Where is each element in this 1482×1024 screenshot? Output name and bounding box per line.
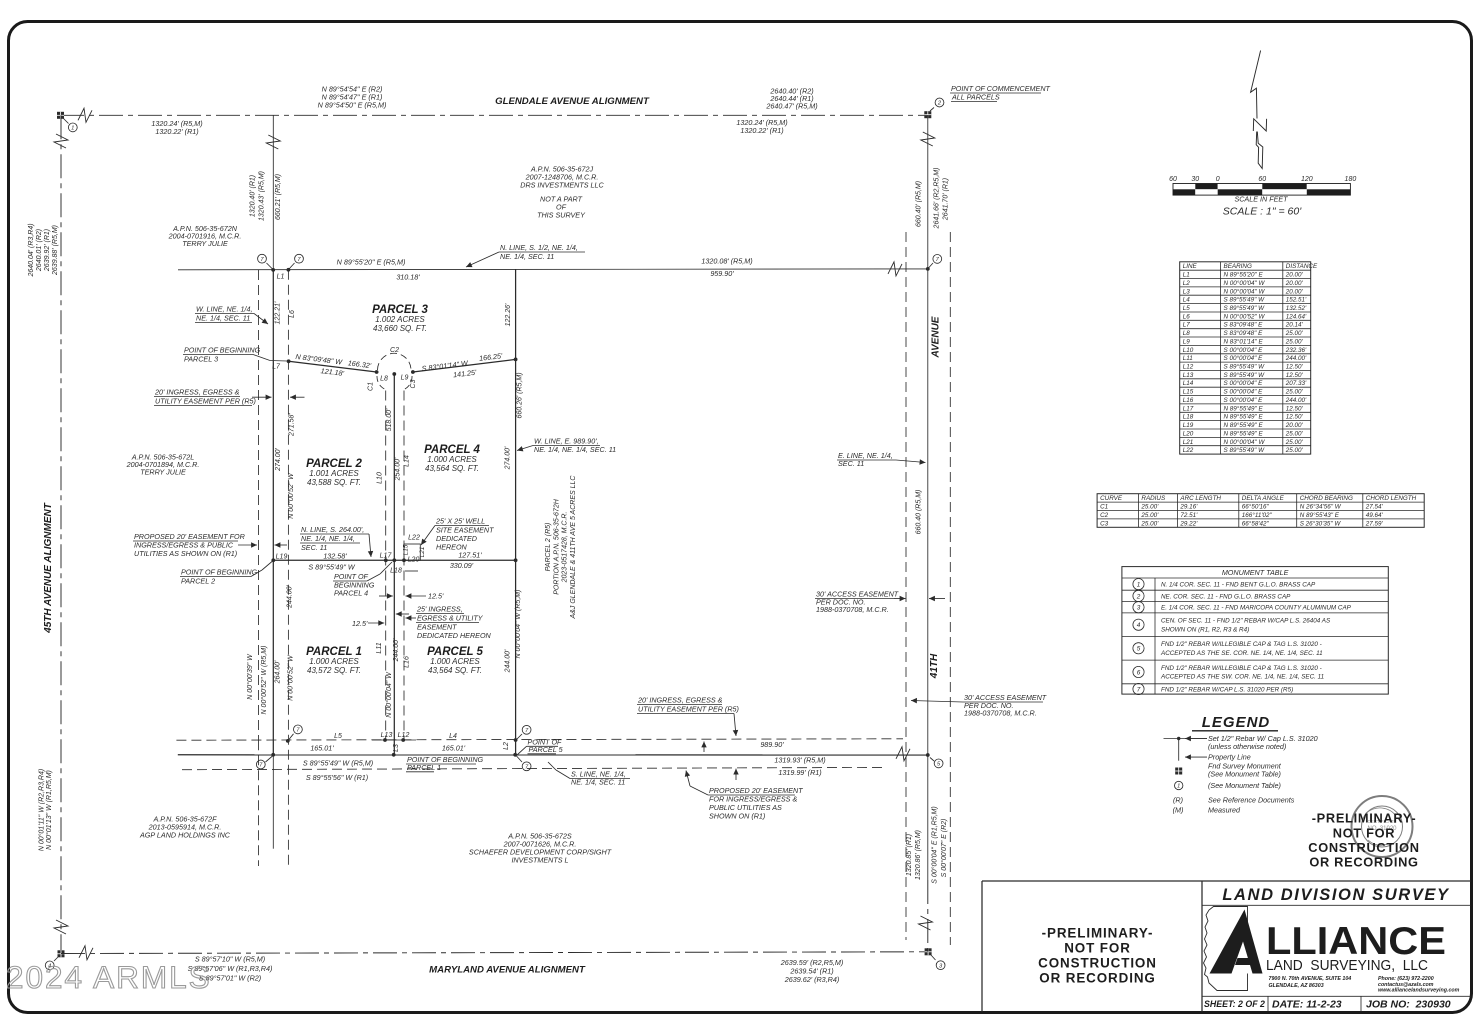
svg-text:NE. COR. SEC. 11 - FND G.L.O.: NE. COR. SEC. 11 - FND G.L.O. BRASS CAP bbox=[1161, 593, 1291, 600]
svg-text:1.002 ACRES: 1.002 ACRES bbox=[375, 315, 425, 324]
svg-text:C1: C1 bbox=[1100, 504, 1108, 511]
svg-text:N 00°00'39" W: N 00°00'39" W bbox=[246, 653, 254, 700]
svg-text:EGRESS & UTILITY: EGRESS & UTILITY bbox=[417, 614, 484, 623]
svg-text:N 89°55'20" E (R5,M): N 89°55'20" E (R5,M) bbox=[337, 258, 406, 267]
svg-text:660.26' (R5,M): 660.26' (R5,M) bbox=[517, 372, 524, 418]
svg-text:L20: L20 bbox=[1183, 430, 1194, 437]
svg-text:UTILITY EASEMENT PER (R5): UTILITY EASEMENT PER (R5) bbox=[155, 397, 256, 406]
svg-text:ARC LENGTH: ARC LENGTH bbox=[1179, 495, 1221, 502]
svg-text:L9: L9 bbox=[1183, 338, 1191, 345]
svg-text:S 89°55'49" W: S 89°55'49" W bbox=[1224, 304, 1266, 312]
svg-text:20.00': 20.00' bbox=[1285, 272, 1304, 279]
svg-text:25.00': 25.00' bbox=[1285, 389, 1304, 396]
svg-text:L6: L6 bbox=[289, 310, 296, 318]
svg-text:S 00°00'04" E: S 00°00'04" E bbox=[1224, 346, 1264, 354]
svg-text:MONUMENT TABLE: MONUMENT TABLE bbox=[1222, 568, 1289, 577]
svg-text:L18: L18 bbox=[390, 568, 402, 575]
svg-text:20.14': 20.14' bbox=[1285, 322, 1304, 329]
svg-text:43,564 SQ. FT.: 43,564 SQ. FT. bbox=[428, 666, 482, 675]
svg-text:3: 3 bbox=[1137, 605, 1141, 612]
svg-text:12.5': 12.5' bbox=[428, 592, 444, 601]
svg-text:(See Monument Table): (See Monument Table) bbox=[1208, 781, 1281, 790]
svg-text:1319.93' (R5,M): 1319.93' (R5,M) bbox=[774, 756, 825, 765]
svg-text:L2: L2 bbox=[1183, 280, 1191, 287]
svg-text:L5: L5 bbox=[1183, 305, 1191, 312]
svg-text:N 00°00'52" W: N 00°00'52" W bbox=[1224, 312, 1266, 320]
svg-text:L7: L7 bbox=[272, 364, 281, 371]
svg-text:E. 1/4 COR. SEC. 11 - FND MARI: E. 1/4 COR. SEC. 11 - FND MARICOPA COUNT… bbox=[1161, 605, 1352, 612]
svg-text:S 89°55'49" W (R5,M): S 89°55'49" W (R5,M) bbox=[303, 759, 373, 768]
svg-text:NOT FOR: NOT FOR bbox=[1064, 941, 1131, 956]
svg-text:264.00': 264.00' bbox=[274, 660, 281, 684]
svg-text:232.36': 232.36' bbox=[1285, 347, 1307, 354]
svg-text:AVENUE: AVENUE bbox=[931, 316, 942, 358]
svg-text:GLENDALE, AZ 86303: GLENDALE, AZ 86303 bbox=[1269, 983, 1324, 989]
svg-text:NE. 1/4, SEC. 11: NE. 1/4, SEC. 11 bbox=[571, 778, 625, 787]
svg-text:ACCEPTED AS THE SW. COR. NE. 1: ACCEPTED AS THE SW. COR. NE. 1/4, NE. 1/… bbox=[1160, 674, 1324, 681]
svg-text:L21: L21 bbox=[1183, 439, 1194, 446]
svg-text:-PRELIMINARY-: -PRELIMINARY- bbox=[1312, 811, 1417, 826]
svg-text:L12: L12 bbox=[1183, 364, 1194, 371]
svg-text:N 83°01'14" E: N 83°01'14" E bbox=[1224, 337, 1264, 345]
svg-text:29.16': 29.16' bbox=[1179, 504, 1198, 511]
svg-text:2639.62' (R3,R4): 2639.62' (R3,R4) bbox=[784, 975, 840, 984]
svg-text:274.00': 274.00' bbox=[505, 446, 512, 470]
svg-text:1320.43' (R5,M): 1320.43' (R5,M) bbox=[259, 171, 266, 221]
svg-text:(R): (R) bbox=[1173, 796, 1183, 805]
svg-text:60: 60 bbox=[1169, 176, 1177, 183]
svg-text:L14: L14 bbox=[1183, 380, 1194, 387]
svg-text:1: 1 bbox=[1137, 582, 1141, 589]
svg-text:L8: L8 bbox=[380, 376, 388, 383]
svg-text:2639.88' (R5,M): 2639.88' (R5,M) bbox=[52, 225, 59, 276]
svg-text:20' INGRESS, EGRESS &: 20' INGRESS, EGRESS & bbox=[154, 388, 240, 397]
svg-text:43,572 SQ. FT.: 43,572 SQ. FT. bbox=[307, 666, 361, 675]
svg-text:271.58': 271.58' bbox=[288, 413, 295, 437]
svg-text:DELTA ANGLE: DELTA ANGLE bbox=[1242, 495, 1285, 502]
svg-text:25.00': 25.00' bbox=[1140, 520, 1159, 527]
svg-text:PARCEL 5: PARCEL 5 bbox=[529, 745, 564, 754]
svg-text:124.64': 124.64' bbox=[1286, 313, 1307, 320]
svg-text:1319.99' (R1): 1319.99' (R1) bbox=[778, 768, 821, 777]
svg-text:PARCEL 1: PARCEL 1 bbox=[407, 763, 441, 772]
svg-text:152.51': 152.51' bbox=[1286, 297, 1307, 304]
svg-text:L5: L5 bbox=[334, 733, 342, 740]
svg-text:LEGEND: LEGEND bbox=[1202, 714, 1271, 731]
svg-text:Property Line: Property Line bbox=[1208, 753, 1251, 762]
svg-text:N 00°00'52" W: N 00°00'52" W bbox=[287, 472, 295, 519]
svg-text:7900 N. 70th AVENUE, SUITE 104: 7900 N. 70th AVENUE, SUITE 104 bbox=[1269, 976, 1352, 982]
svg-text:C3: C3 bbox=[410, 379, 417, 388]
svg-text:1320.40' (R1): 1320.40' (R1) bbox=[250, 175, 257, 217]
svg-text:N 89°55'43" E: N 89°55'43" E bbox=[1300, 511, 1340, 519]
svg-text:2641.70' (R1): 2641.70' (R1) bbox=[943, 178, 950, 221]
svg-text:25' INGRESS,: 25' INGRESS, bbox=[416, 605, 463, 614]
svg-text:244.00': 244.00' bbox=[1285, 355, 1307, 362]
svg-text:NE. 1/4, NE. 1/4,: NE. 1/4, NE. 1/4, bbox=[301, 534, 355, 543]
svg-text:RADIUS: RADIUS bbox=[1141, 495, 1166, 502]
svg-text:122.26': 122.26' bbox=[505, 303, 512, 326]
svg-text:1320.85' (R1): 1320.85' (R1) bbox=[906, 834, 913, 876]
svg-text:25.00': 25.00' bbox=[1285, 330, 1304, 337]
svg-text:2640.47' (R5,M): 2640.47' (R5,M) bbox=[765, 102, 817, 111]
svg-text:4: 4 bbox=[1137, 622, 1141, 629]
svg-text:DRS INVESTMENTS LLC: DRS INVESTMENTS LLC bbox=[520, 181, 604, 190]
svg-text:N 00°00'04" W: N 00°00'04" W bbox=[1224, 279, 1266, 287]
svg-text:POINT OF BEGINNING: POINT OF BEGINNING bbox=[181, 568, 258, 577]
svg-text:60: 60 bbox=[1258, 176, 1266, 183]
svg-text:120: 120 bbox=[1301, 176, 1313, 183]
svg-text:THIS SURVEY: THIS SURVEY bbox=[537, 211, 586, 220]
svg-text:12.50': 12.50' bbox=[1286, 372, 1304, 379]
svg-text:660.21' (R5,M): 660.21' (R5,M) bbox=[275, 174, 282, 220]
svg-text:CURVE: CURVE bbox=[1100, 495, 1123, 502]
svg-text:25.00': 25.00' bbox=[1285, 338, 1304, 345]
svg-text:2023-0517428, M.C.R.: 2023-0517428, M.C.R. bbox=[562, 512, 569, 584]
svg-text:SEC. 11: SEC. 11 bbox=[838, 459, 864, 468]
svg-text:132.52': 132.52' bbox=[1286, 305, 1307, 312]
svg-text:NE. 1/4, SEC. 11: NE. 1/4, SEC. 11 bbox=[196, 314, 250, 323]
svg-text:L16: L16 bbox=[1183, 397, 1194, 404]
svg-text:43,588 SQ. FT.: 43,588 SQ. FT. bbox=[307, 478, 361, 487]
svg-text:L15: L15 bbox=[402, 544, 409, 555]
svg-text:N 89°55'49" E: N 89°55'49" E bbox=[1224, 421, 1264, 429]
svg-text:122.21': 122.21' bbox=[275, 301, 282, 324]
svg-text:ALL PARCELS: ALL PARCELS bbox=[951, 93, 1000, 102]
svg-text:L19: L19 bbox=[276, 554, 288, 561]
svg-text:L3: L3 bbox=[1183, 288, 1191, 295]
svg-text:S 89°55'49" W: S 89°55'49" W bbox=[1224, 363, 1266, 371]
svg-text:NE. 1/4, SEC. 11: NE. 1/4, SEC. 11 bbox=[500, 252, 554, 261]
svg-text:CEN. OF SEC. 11 - FND 1/2" REB: CEN. OF SEC. 11 - FND 1/2" REBAR W/CAP L… bbox=[1161, 618, 1331, 625]
svg-text:L6: L6 bbox=[1183, 313, 1191, 320]
svg-text:49.64': 49.64' bbox=[1366, 512, 1384, 519]
svg-text:A&J GLENDALE & 411TH AVE 5 ACR: A&J GLENDALE & 411TH AVE 5 ACRES LLC bbox=[570, 475, 577, 620]
svg-text:L1: L1 bbox=[277, 273, 285, 280]
svg-text:20.00': 20.00' bbox=[1285, 288, 1304, 295]
svg-text:25.00': 25.00' bbox=[1285, 447, 1304, 454]
svg-text:2641.66' (R2,R5,M): 2641.66' (R2,R5,M) bbox=[934, 168, 941, 230]
svg-text:C2: C2 bbox=[390, 347, 399, 354]
svg-text:1988-0370708, M.C.R.: 1988-0370708, M.C.R. bbox=[964, 709, 1037, 718]
svg-text:C1: C1 bbox=[368, 382, 375, 391]
svg-text:29.22': 29.22' bbox=[1179, 520, 1198, 527]
svg-text:2024 ARMLS: 2024 ARMLS bbox=[6, 959, 212, 995]
svg-text:1.000 ACRES: 1.000 ACRES bbox=[427, 455, 477, 464]
svg-text:207.33': 207.33' bbox=[1285, 380, 1307, 387]
svg-text:MARYLAND AVENUE ALIGNMENT: MARYLAND AVENUE ALIGNMENT bbox=[429, 965, 586, 976]
svg-text:244.00': 244.00' bbox=[286, 584, 293, 608]
svg-text:S 00°00'04" E: S 00°00'04" E bbox=[1224, 396, 1264, 404]
svg-text:N 89°55'49" E: N 89°55'49" E bbox=[1224, 429, 1264, 437]
svg-text:TERRY JULIE: TERRY JULIE bbox=[182, 239, 228, 248]
svg-text:OR RECORDING: OR RECORDING bbox=[1309, 855, 1418, 870]
svg-text:N 00°00'04" W: N 00°00'04" W bbox=[385, 671, 393, 718]
svg-text:-PRELIMINARY-: -PRELIMINARY- bbox=[1042, 926, 1154, 941]
svg-text:PARCEL 2 (R5): PARCEL 2 (R5) bbox=[545, 523, 552, 572]
svg-text:DEDICATED HEREON: DEDICATED HEREON bbox=[417, 631, 492, 640]
svg-text:(unless otherwise noted): (unless otherwise noted) bbox=[1208, 742, 1286, 751]
svg-text:2640.04' (R3,R4): 2640.04' (R3,R4) bbox=[28, 223, 35, 277]
svg-text:12.50': 12.50' bbox=[1286, 414, 1304, 421]
svg-text:L11: L11 bbox=[376, 642, 383, 653]
svg-text:N 89°55'49" E: N 89°55'49" E bbox=[1224, 413, 1264, 421]
svg-text:DATE: 11-2-23: DATE: 11-2-23 bbox=[1272, 999, 1342, 1011]
svg-text:W. LINE, NE. 1/4,: W. LINE, NE. 1/4, bbox=[196, 305, 252, 314]
svg-text:S 89°55'49" W: S 89°55'49" W bbox=[1224, 446, 1266, 454]
svg-text:20.00': 20.00' bbox=[1285, 422, 1304, 429]
svg-text:7: 7 bbox=[1137, 686, 1141, 693]
svg-text:660.40' (R5,M): 660.40' (R5,M) bbox=[916, 181, 923, 227]
svg-text:L4: L4 bbox=[1183, 297, 1191, 304]
svg-text:S 26°30'35" W: S 26°30'35" W bbox=[1300, 519, 1342, 527]
svg-text:L2: L2 bbox=[503, 742, 510, 750]
svg-text:L13: L13 bbox=[381, 732, 393, 739]
svg-text:20.00': 20.00' bbox=[1285, 280, 1304, 287]
svg-text:LAND SURVEYING, LLC: LAND SURVEYING, LLC bbox=[1266, 957, 1428, 974]
svg-text:UTILITY EASEMENT PER (R5): UTILITY EASEMENT PER (R5) bbox=[638, 705, 739, 714]
svg-text:CHORD BEARING: CHORD BEARING bbox=[1300, 495, 1353, 502]
svg-text:244.00': 244.00' bbox=[504, 649, 511, 673]
svg-text:L18: L18 bbox=[1183, 414, 1194, 421]
svg-text:132.58': 132.58' bbox=[323, 552, 347, 561]
svg-text:41TH: 41TH bbox=[929, 653, 940, 679]
svg-text:0: 0 bbox=[1216, 176, 1220, 183]
svg-text:6: 6 bbox=[1137, 669, 1141, 676]
svg-text:N. LINE, S. 1/2, NE. 1/4,: N. LINE, S. 1/2, NE. 1/4, bbox=[500, 243, 578, 252]
svg-text:S 83°09'48" E: S 83°09'48" E bbox=[1224, 321, 1264, 329]
svg-text:66°50'16": 66°50'16" bbox=[1242, 503, 1270, 511]
svg-text:180: 180 bbox=[1345, 176, 1357, 183]
svg-text:166°11'02": 166°11'02" bbox=[1242, 511, 1273, 519]
svg-text:N 00°01'11" W (R2,R3,R4): N 00°01'11" W (R2,R3,R4) bbox=[38, 769, 46, 851]
svg-text:20' INGRESS, EGRESS &: 20' INGRESS, EGRESS & bbox=[637, 696, 723, 705]
svg-text:AGP LAND HOLDINGS INC: AGP LAND HOLDINGS INC bbox=[139, 831, 231, 840]
svg-text:2640.01' (R2): 2640.01' (R2) bbox=[36, 229, 43, 272]
svg-text:N 89°55'20" E: N 89°55'20" E bbox=[1224, 271, 1264, 279]
svg-text:1: 1 bbox=[71, 126, 74, 132]
svg-text:27.59': 27.59' bbox=[1365, 520, 1384, 527]
svg-text:BEARING: BEARING bbox=[1224, 263, 1252, 270]
svg-text:S 00°00'04" E: S 00°00'04" E bbox=[1224, 379, 1264, 387]
svg-text:CONSTRUCTION: CONSTRUCTION bbox=[1038, 956, 1157, 971]
svg-text:254.00': 254.00' bbox=[395, 457, 402, 481]
svg-text:UTILITIES AS SHOWN ON (R1): UTILITIES AS SHOWN ON (R1) bbox=[134, 549, 237, 558]
svg-text:2639.92' (R1): 2639.92' (R1) bbox=[44, 229, 51, 272]
svg-text:L11: L11 bbox=[1183, 355, 1193, 362]
svg-text:PARCEL 4: PARCEL 4 bbox=[334, 589, 368, 598]
svg-text:C3: C3 bbox=[1100, 520, 1109, 527]
svg-text:SHOWN ON (R1): SHOWN ON (R1) bbox=[709, 812, 765, 821]
svg-text:244.00': 244.00' bbox=[1285, 397, 1307, 404]
svg-text:L21: L21 bbox=[419, 546, 426, 557]
svg-text:(See Monument Table): (See Monument Table) bbox=[1208, 770, 1281, 779]
svg-text:N 00°00'04" W: N 00°00'04" W bbox=[1224, 287, 1266, 295]
svg-text:S 89°55'56" W (R1): S 89°55'56" W (R1) bbox=[306, 773, 368, 782]
svg-text:SHOWN ON (R1, R2, R3 & R4): SHOWN ON (R1, R2, R3 & R4) bbox=[1161, 626, 1249, 633]
svg-text:N 00°00'04" W: N 00°00'04" W bbox=[1224, 438, 1266, 446]
svg-text:LINE: LINE bbox=[1183, 263, 1198, 270]
svg-text:N 00°00'04" W (R5,M): N 00°00'04" W (R5,M) bbox=[514, 590, 522, 659]
svg-text:SHEET: 2 OF 2: SHEET: 2 OF 2 bbox=[1204, 999, 1265, 1009]
svg-text:C2: C2 bbox=[1100, 512, 1109, 519]
svg-text:DISTANCE: DISTANCE bbox=[1286, 263, 1318, 270]
svg-text:165.01': 165.01' bbox=[310, 744, 334, 753]
svg-text:244.00': 244.00' bbox=[393, 638, 400, 662]
svg-text:N 26°34'56" W: N 26°34'56" W bbox=[1300, 503, 1342, 511]
svg-text:See Reference Documents: See Reference Documents bbox=[1208, 796, 1295, 805]
svg-text:TERRY JULIE: TERRY JULIE bbox=[140, 468, 186, 477]
svg-text:L10: L10 bbox=[1183, 347, 1194, 354]
svg-text:27.54': 27.54' bbox=[1365, 504, 1384, 511]
svg-text:66°58'42": 66°58'42" bbox=[1242, 519, 1270, 527]
svg-text:S 00°00'04" E (R1,R5,M): S 00°00'04" E (R1,R5,M) bbox=[930, 806, 938, 883]
svg-text:L17: L17 bbox=[1183, 405, 1194, 412]
svg-text:FND 1/2" REBAR W/CAP L.S. 3102: FND 1/2" REBAR W/CAP L.S. 31020 PER (R5) bbox=[1161, 686, 1293, 693]
svg-text:1.000 ACRES: 1.000 ACRES bbox=[309, 657, 359, 666]
svg-text:1320.22' (R1): 1320.22' (R1) bbox=[155, 127, 198, 136]
svg-text:SEC. 11: SEC. 11 bbox=[301, 543, 327, 552]
svg-text:25.00': 25.00' bbox=[1140, 512, 1159, 519]
svg-text:43,564 SQ. FT.: 43,564 SQ. FT. bbox=[425, 464, 479, 473]
svg-text:518.00': 518.00' bbox=[386, 408, 393, 431]
svg-text:ACCEPTED AS THE SE. COR. NE. 1: ACCEPTED AS THE SE. COR. NE. 1/4, NE. 1/… bbox=[1160, 650, 1323, 657]
svg-text:PARCEL 3: PARCEL 3 bbox=[184, 355, 218, 364]
svg-text:N 00°00'52" W (R5,M): N 00°00'52" W (R5,M) bbox=[260, 646, 268, 715]
svg-text:SCALE IN FEET: SCALE IN FEET bbox=[1234, 195, 1288, 204]
svg-text:43,660 SQ. FT.: 43,660 SQ. FT. bbox=[373, 324, 427, 333]
svg-text:989.90': 989.90' bbox=[760, 740, 784, 749]
svg-text:JOB NO: 230930: JOB NO: 230930 bbox=[1366, 999, 1451, 1011]
svg-text:L22: L22 bbox=[408, 535, 420, 542]
svg-text:959.90': 959.90' bbox=[710, 269, 734, 278]
svg-text:S 00°00'04" E: S 00°00'04" E bbox=[1224, 354, 1264, 362]
svg-text:N. LINE, S. 264.00',: N. LINE, S. 264.00', bbox=[301, 525, 364, 534]
svg-text:12.5': 12.5' bbox=[352, 619, 368, 628]
svg-text:L13: L13 bbox=[1183, 372, 1194, 379]
svg-text:CONSTRUCTION: CONSTRUCTION bbox=[1308, 840, 1419, 855]
svg-text:274.00': 274.00' bbox=[275, 447, 282, 471]
svg-text:LAND DIVISION SURVEY: LAND DIVISION SURVEY bbox=[1222, 886, 1450, 904]
svg-text:72.51': 72.51' bbox=[1180, 512, 1198, 519]
svg-text:N 89°55'49" E: N 89°55'49" E bbox=[1224, 404, 1264, 412]
svg-text:45TH AVENUE ALIGNMENT: 45TH AVENUE ALIGNMENT bbox=[43, 502, 54, 634]
svg-text:www.alliancelandsurveying.com: www.alliancelandsurveying.com bbox=[1378, 988, 1460, 994]
svg-text:127.51': 127.51' bbox=[458, 551, 482, 560]
svg-text:N 89°54'50" E (R5,M): N 89°54'50" E (R5,M) bbox=[318, 101, 387, 110]
svg-text:FND 1/2" REBAR W/ILLEGIBLE CAP: FND 1/2" REBAR W/ILLEGIBLE CAP & TAG L.S… bbox=[1161, 665, 1322, 672]
svg-text:L10: L10 bbox=[376, 472, 383, 484]
svg-text:L14: L14 bbox=[403, 455, 410, 467]
svg-text:1320.86' (R5,M): 1320.86' (R5,M) bbox=[915, 830, 922, 880]
svg-text:L9: L9 bbox=[401, 375, 409, 382]
svg-text:5: 5 bbox=[1137, 646, 1141, 653]
svg-text:1.001 ACRES: 1.001 ACRES bbox=[309, 469, 359, 478]
svg-text:GLENDALE AVENUE ALIGNMENT: GLENDALE AVENUE ALIGNMENT bbox=[495, 96, 650, 107]
svg-text:1.000 ACRES: 1.000 ACRES bbox=[430, 657, 480, 666]
svg-text:165.01': 165.01' bbox=[442, 744, 466, 753]
svg-text:L12: L12 bbox=[398, 732, 410, 739]
svg-text:INVESTMENTS L: INVESTMENTS L bbox=[511, 856, 568, 865]
svg-text:HEREON: HEREON bbox=[436, 543, 468, 552]
svg-text:OR RECORDING: OR RECORDING bbox=[1039, 971, 1155, 986]
svg-text:12.50': 12.50' bbox=[1286, 405, 1304, 412]
svg-text:25' X 25' WELL: 25' X 25' WELL bbox=[435, 517, 485, 526]
svg-text:N. 1/4 COR. SEC. 11 - FND BENT: N. 1/4 COR. SEC. 11 - FND BENT G.L.O. BR… bbox=[1161, 582, 1316, 589]
svg-text:CHORD LENGTH: CHORD LENGTH bbox=[1366, 495, 1417, 502]
svg-text:L15: L15 bbox=[1183, 389, 1194, 396]
svg-text:12.50': 12.50' bbox=[1286, 364, 1304, 371]
svg-text:25.00': 25.00' bbox=[1285, 439, 1304, 446]
svg-text:PARCEL 2: PARCEL 2 bbox=[181, 577, 215, 586]
svg-text:S 89°55'49" W: S 89°55'49" W bbox=[1224, 371, 1266, 379]
svg-text:N 00°00'52" W: N 00°00'52" W bbox=[287, 654, 295, 701]
svg-text:S 89°55'49" W: S 89°55'49" W bbox=[1224, 296, 1266, 304]
svg-text:N 00°01'13" W (R1,R5,M): N 00°01'13" W (R1,R5,M) bbox=[45, 770, 53, 850]
svg-text:PORTION A.P.N. 506-35-672H: PORTION A.P.N. 506-35-672H bbox=[553, 498, 560, 595]
svg-text:L16: L16 bbox=[403, 656, 410, 668]
svg-text:2: 2 bbox=[1136, 593, 1141, 600]
svg-text:L19: L19 bbox=[1183, 422, 1194, 429]
svg-text:S 00°00'04" E: S 00°00'04" E bbox=[1224, 388, 1264, 396]
svg-text:1320.08' (R5,M): 1320.08' (R5,M) bbox=[701, 257, 752, 266]
svg-text:SCALE : 1" = 60': SCALE : 1" = 60' bbox=[1223, 206, 1302, 218]
svg-text:S 89°55'49" W: S 89°55'49" W bbox=[308, 563, 356, 572]
svg-text:25.00': 25.00' bbox=[1285, 430, 1304, 437]
svg-text:660.40 (R5,M): 660.40 (R5,M) bbox=[916, 490, 923, 535]
svg-text:FND 1/2" REBAR W/ILLEGIBLE CAP: FND 1/2" REBAR W/ILLEGIBLE CAP & TAG L.S… bbox=[1161, 641, 1322, 648]
svg-text:S 83°09'48" E: S 83°09'48" E bbox=[1224, 329, 1264, 337]
svg-text:L4: L4 bbox=[449, 733, 457, 740]
svg-text:L7: L7 bbox=[1183, 322, 1191, 329]
svg-text:POINT OF BEGINNING: POINT OF BEGINNING bbox=[184, 346, 261, 355]
svg-text:(M): (M) bbox=[1173, 806, 1184, 815]
svg-text:1: 1 bbox=[1177, 784, 1180, 790]
svg-text:30: 30 bbox=[1191, 176, 1199, 183]
svg-text:S 00°00'07" E (R2): S 00°00'07" E (R2) bbox=[940, 819, 948, 878]
svg-text:NOT FOR: NOT FOR bbox=[1333, 826, 1395, 841]
svg-text:1320.22' (R1): 1320.22' (R1) bbox=[740, 126, 783, 135]
svg-text:L8: L8 bbox=[1183, 330, 1191, 337]
svg-text:Measured: Measured bbox=[1208, 806, 1241, 815]
svg-text:330.09': 330.09' bbox=[450, 561, 474, 570]
svg-text:L1: L1 bbox=[1183, 272, 1190, 279]
svg-text:L3: L3 bbox=[393, 744, 400, 752]
svg-text:L17: L17 bbox=[380, 553, 393, 560]
svg-text:25.00': 25.00' bbox=[1140, 504, 1159, 511]
svg-text:NE. 1/4, NE. 1/4, SEC. 11: NE. 1/4, NE. 1/4, SEC. 11 bbox=[534, 445, 616, 454]
svg-text:310.18': 310.18' bbox=[396, 273, 420, 282]
svg-text:1988-0370708, M.C.R.: 1988-0370708, M.C.R. bbox=[816, 605, 889, 614]
svg-text:L22: L22 bbox=[1183, 447, 1194, 454]
